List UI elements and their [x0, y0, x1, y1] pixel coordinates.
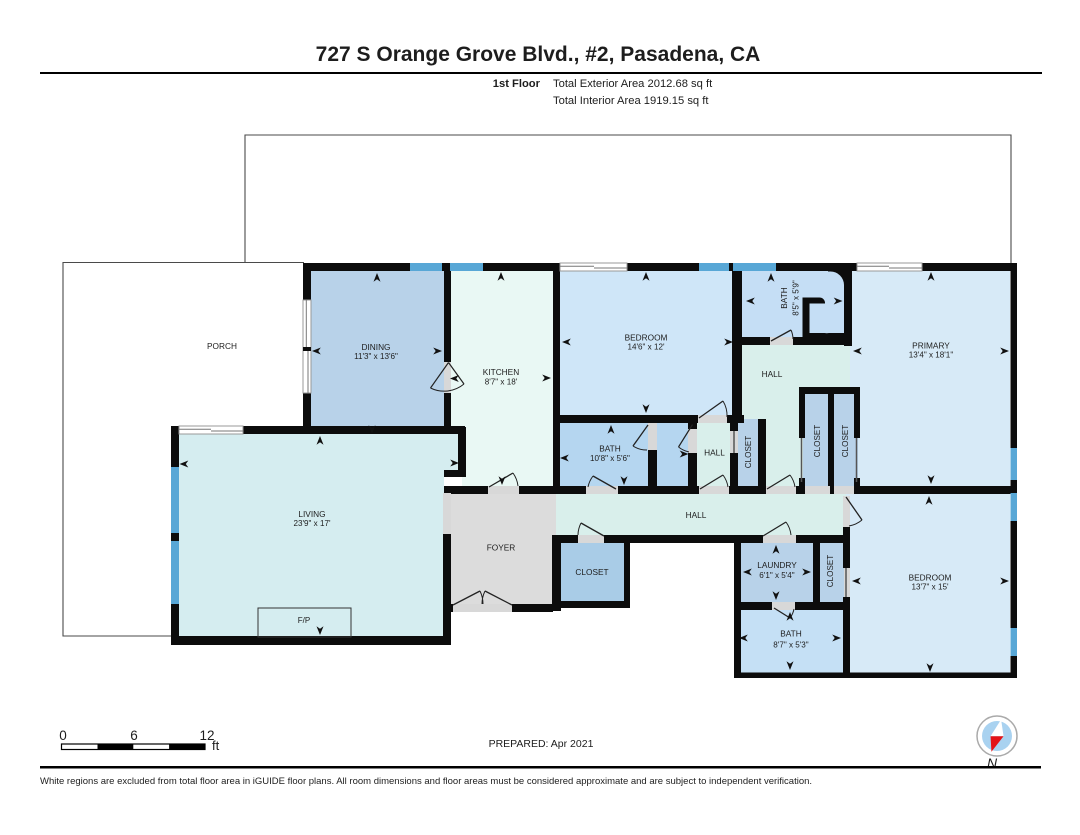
svg-text:13'4" x 18'1": 13'4" x 18'1": [909, 351, 954, 360]
svg-text:ft: ft: [212, 738, 220, 753]
svg-text:CLOSET: CLOSET: [813, 425, 822, 457]
svg-text:8'7" x 18': 8'7" x 18': [485, 378, 518, 387]
svg-text:0: 0: [59, 728, 67, 743]
svg-text:BATH: BATH: [779, 287, 789, 309]
svg-text:Total Interior Area 1919.15 sq: Total Interior Area 1919.15 sq ft: [553, 95, 709, 107]
svg-text:BATH: BATH: [599, 444, 621, 454]
svg-text:8'5" x 5'9": 8'5" x 5'9": [792, 280, 801, 316]
svg-text:LIVING: LIVING: [298, 509, 325, 519]
svg-text:CLOSET: CLOSET: [744, 436, 753, 468]
svg-text:CLOSET: CLOSET: [575, 567, 608, 577]
svg-text:23'9" x 17': 23'9" x 17': [293, 519, 330, 528]
svg-text:11'3" x 13'6": 11'3" x 13'6": [354, 352, 398, 361]
svg-text:Total Exterior Area 2012.68 sq: Total Exterior Area 2012.68 sq ft: [553, 78, 713, 90]
svg-text:HALL: HALL: [686, 510, 707, 520]
svg-text:BEDROOM: BEDROOM: [909, 573, 952, 583]
svg-text:PREPARED: Apr 2021: PREPARED: Apr 2021: [489, 738, 594, 750]
svg-text:White regions are excluded fro: White regions are excluded from total fl…: [40, 776, 812, 787]
svg-text:KITCHEN: KITCHEN: [483, 367, 519, 377]
svg-text:1st Floor: 1st Floor: [493, 78, 541, 90]
svg-text:6: 6: [130, 728, 138, 743]
svg-text:N: N: [987, 755, 998, 771]
svg-text:CLOSET: CLOSET: [841, 425, 850, 457]
svg-text:HALL: HALL: [762, 369, 783, 379]
svg-text:FOYER: FOYER: [487, 543, 516, 553]
svg-text:14'6" x 12': 14'6" x 12': [627, 343, 664, 352]
svg-text:DINING: DINING: [361, 342, 390, 352]
svg-text:727 S Orange Grove Blvd., #2,: 727 S Orange Grove Blvd., #2, Pasadena, …: [316, 43, 761, 66]
svg-text:CLOSET: CLOSET: [826, 555, 835, 587]
svg-text:13'7" x 15': 13'7" x 15': [911, 583, 948, 592]
svg-text:PORCH: PORCH: [207, 341, 237, 351]
svg-text:F/P: F/P: [298, 616, 310, 625]
svg-text:10'8" x 5'6": 10'8" x 5'6": [590, 454, 630, 463]
svg-text:LAUNDRY: LAUNDRY: [757, 560, 797, 570]
svg-text:8'7" x 5'3": 8'7" x 5'3": [773, 641, 809, 650]
svg-text:PRIMARY: PRIMARY: [912, 341, 950, 351]
svg-text:BATH: BATH: [780, 629, 802, 639]
svg-text:BEDROOM: BEDROOM: [625, 333, 668, 343]
svg-text:HALL: HALL: [704, 448, 725, 458]
svg-text:6'1" x 5'4": 6'1" x 5'4": [759, 571, 795, 580]
